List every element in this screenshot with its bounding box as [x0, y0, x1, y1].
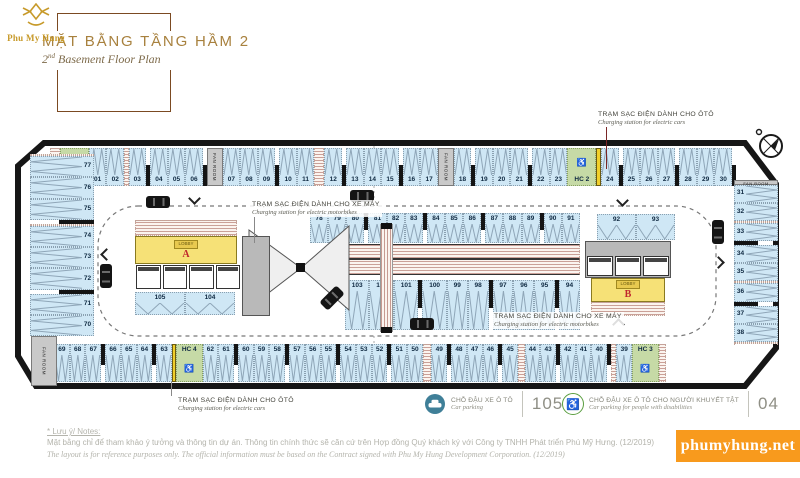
stall-number: 104	[186, 293, 234, 303]
elevator-icon	[136, 265, 161, 289]
stall-number: 57	[290, 345, 304, 355]
stall-number: 38	[735, 325, 746, 341]
stall-number: 41	[577, 345, 591, 355]
annotation-en: Charging station for electric motorbikes	[494, 321, 622, 328]
car-icon	[712, 220, 724, 244]
parking-stall: 05	[168, 148, 186, 186]
stall-number: 11	[298, 175, 313, 185]
stall-number: 31	[735, 186, 746, 202]
parking-stall: 105	[135, 292, 185, 315]
parking-stall: 41	[576, 344, 592, 382]
stall-number: 68	[71, 345, 85, 355]
parking-stall: 24	[601, 148, 619, 186]
wheelchair-icon: ♿	[177, 355, 202, 381]
core-b-stalls: 9293	[597, 214, 675, 240]
parking-stall: 93	[636, 214, 675, 240]
parking-stall: 98	[468, 280, 489, 330]
parking-stall: 62	[203, 344, 219, 382]
annotation-en: Charging station for electric cars	[178, 405, 294, 412]
parking-stall: 66	[105, 344, 121, 382]
stall-number: 75	[82, 200, 93, 219]
parking-stall: 92	[597, 214, 636, 240]
stall-number: 22	[533, 175, 549, 185]
parking-stall: 19	[475, 148, 493, 186]
parking-stall: 36	[734, 283, 778, 301]
wheelchair-icon: ♿	[633, 355, 658, 381]
parking-stall: 87	[485, 213, 503, 243]
elevator-icon	[615, 256, 641, 276]
parking-stall: 63	[156, 344, 172, 382]
stall-number: 05	[169, 175, 185, 185]
fan-room-label: FAN ROOM	[443, 153, 448, 181]
stall-number: 101	[395, 281, 417, 291]
parking-stall: 75	[30, 199, 94, 220]
car-parking-icon	[424, 393, 446, 415]
parking-stall: 88	[503, 213, 521, 243]
parking-stall: 21	[510, 148, 528, 186]
stall-number: 56	[306, 345, 320, 355]
stall-number: 84	[428, 214, 444, 224]
stall-number: 87	[486, 214, 502, 224]
parking-stall: 59	[254, 344, 270, 382]
stall-number: 18	[455, 175, 471, 185]
title-vietnamese: MẶT BẰNG TẦNG HẦM 2	[42, 33, 250, 50]
stall-number: 61	[219, 345, 233, 355]
parking-stall: 104	[185, 292, 235, 315]
core-b-lobby: LOBBY B	[591, 278, 665, 302]
stall-number: 58	[270, 345, 284, 355]
right-parking-column: FAN ROOM3132333435363738	[734, 180, 778, 344]
parking-stall: 16	[403, 148, 421, 186]
car-icon	[146, 196, 170, 208]
parking-stall: 65	[121, 344, 137, 382]
annotation-vi: TRẠM SẠC ĐIỆN DÀNH CHO ÔTÔ	[598, 111, 714, 119]
stall-number: 72	[82, 269, 93, 288]
parking-stall: 85	[445, 213, 463, 243]
floor-plan-page: Phu My Hung MẶT BẰNG TẦNG HẦM 2 2nd Base…	[0, 0, 800, 478]
stall-number: 09	[259, 175, 275, 185]
parking-stall: 83	[405, 213, 423, 243]
parking-stall: 89	[522, 213, 540, 243]
fan-room-label: FAN ROOM	[42, 347, 47, 375]
stall-number: 93	[637, 215, 674, 225]
top-parking-row: ♿HC 1010203040506FAN ROOM070809101112131…	[50, 148, 736, 186]
stall-number: 15	[382, 175, 398, 185]
stall-number: 66	[106, 345, 120, 355]
core-a-stalls: 105104	[135, 292, 235, 315]
notes-heading: * Lưu ý/ Notes:	[47, 427, 762, 436]
parking-stall: 48	[451, 344, 467, 382]
parking-stall: 30	[714, 148, 732, 186]
title-en-sup: nd	[48, 52, 55, 60]
legend-accessible-text: CHỖ ĐẬU XE Ô TÔ CHO NGƯỜI KHUYẾT TẬT Car…	[589, 397, 739, 411]
parking-stall: 28	[679, 148, 697, 186]
parking-stall: 45	[502, 344, 518, 382]
annotation-en: Charging station for electric motorbikes	[252, 209, 380, 216]
core-a-letter: A	[182, 249, 189, 260]
legend-accessible-en: Car parking for people with disabilities	[589, 404, 739, 411]
parking-stall: 64	[137, 344, 153, 382]
stall-number: 90	[545, 214, 561, 224]
parking-stall: 40	[591, 344, 607, 382]
notes: * Lưu ý/ Notes: Mặt bằng chỉ để tham khả…	[47, 427, 762, 459]
notes-english: The layout is for reference purposes onl…	[47, 450, 762, 459]
core-a-stair-block	[242, 236, 270, 316]
stall-number: 105	[136, 293, 184, 303]
parking-stall: 77	[30, 156, 94, 177]
stall-number: 47	[468, 345, 482, 355]
parking-stall: 42	[560, 344, 576, 382]
bottom-parking-row: 69686766656463♿HC 4626160595857565554535…	[54, 344, 666, 382]
stall-number: 99	[448, 281, 467, 291]
parking-stall: 60	[238, 344, 254, 382]
parking-stall: 09	[258, 148, 276, 186]
legend-divider	[748, 391, 749, 417]
stall-number: 76	[82, 178, 93, 197]
parking-stall: 74	[30, 226, 94, 247]
stall-number: 48	[452, 345, 466, 355]
stall-number: 08	[241, 175, 257, 185]
annotation-car-charging-top: TRẠM SẠC ĐIỆN DÀNH CHO ÔTÔ Charging stat…	[596, 110, 716, 127]
elevator-icon	[189, 265, 214, 289]
stall-number: 36	[735, 284, 746, 300]
parking-stall: 06	[185, 148, 203, 186]
notes-vietnamese: Mặt bằng chỉ để tham khảo ý tưởng và thô…	[47, 438, 762, 447]
parking-stall: 70	[30, 315, 94, 336]
accessible-stall: ♿HC 4	[176, 344, 203, 382]
parking-stall: 67	[85, 344, 101, 382]
stall-number: HC 3	[633, 345, 658, 355]
parking-stall: 91	[562, 213, 580, 243]
stall-number: 96	[514, 281, 533, 291]
fan-room: FAN ROOM	[207, 148, 223, 186]
stall-number: HC 2	[568, 175, 595, 185]
stall-number: 26	[641, 175, 657, 185]
stall-number: 91	[563, 214, 579, 224]
core-a-motorbike-area	[135, 220, 237, 236]
title-english: 2nd Basement Floor Plan	[42, 52, 250, 67]
stall-number: 94	[560, 281, 579, 291]
legend-car-en: Car parking	[451, 404, 513, 411]
parking-stall: 07	[223, 148, 241, 186]
stall-number: 04	[151, 175, 167, 185]
phu-my-hung-logo-icon	[14, 3, 58, 27]
stall-number: 40	[592, 345, 606, 355]
parking-stall: 61	[218, 344, 234, 382]
stall-number: HC 4	[177, 345, 202, 355]
phu-my-hung-logo: Phu My Hung	[2, 3, 70, 43]
motorbike-area	[659, 344, 666, 382]
parking-stall: 15	[381, 148, 399, 186]
parking-stall: 17	[420, 148, 438, 186]
parking-stall: 55	[321, 344, 337, 382]
legend-divider	[522, 391, 523, 417]
stall-number: 12	[325, 175, 341, 185]
parking-stall: 10	[279, 148, 297, 186]
stall-number: 14	[365, 175, 381, 185]
stall-number: 27	[659, 175, 675, 185]
stall-number: 49	[432, 345, 446, 355]
parking-stall: 86	[463, 213, 481, 243]
parking-stall: 72	[30, 268, 94, 289]
legend-accessible-vi: CHỖ ĐẬU XE Ô TÔ CHO NGƯỜI KHUYẾT TẬT	[589, 397, 739, 404]
parking-stall: 56	[305, 344, 321, 382]
stall-number: 77	[82, 157, 93, 176]
parking-stall: 47	[467, 344, 483, 382]
fan-room: FAN ROOM	[438, 148, 454, 186]
stall-number: 98	[469, 281, 488, 291]
leader-line	[606, 127, 607, 169]
stall-number: 54	[341, 345, 355, 355]
stall-number: 86	[464, 214, 480, 224]
accessible-stall: ♿HC 3	[632, 344, 659, 382]
parking-stall: 54	[340, 344, 356, 382]
stall-number: 95	[535, 281, 554, 291]
stall-number: 88	[504, 214, 520, 224]
basement-plan: ♿HC 1010203040506FAN ROOM070809101112131…	[14, 128, 784, 394]
stall-number: 52	[373, 345, 387, 355]
legend-accessible-count: 04	[758, 394, 779, 414]
stall-number: 85	[446, 214, 462, 224]
parking-stall: 43	[540, 344, 556, 382]
page-title: MẶT BẰNG TẦNG HẦM 2 2nd Basement Floor P…	[38, 31, 258, 70]
stall-number: 34	[735, 246, 746, 262]
parking-stall: 46	[483, 344, 499, 382]
stall-number: 43	[541, 345, 555, 355]
parking-stall: 08	[240, 148, 258, 186]
stall-number: 33	[735, 224, 746, 240]
stall-number: 30	[715, 175, 731, 185]
annotation-en: Charging station for electric cars	[598, 119, 714, 126]
stall-number: 60	[239, 345, 253, 355]
parking-stall: 35	[734, 263, 778, 281]
brand-text: Phu My Hung	[2, 33, 70, 43]
stall-number: 44	[526, 345, 540, 355]
stall-number: 35	[735, 264, 746, 280]
stall-number: 71	[82, 295, 93, 314]
legend-car-count: 105	[532, 394, 563, 414]
motorbike-area	[423, 344, 431, 382]
lobby-label: LOBBY	[616, 280, 639, 288]
annotation-vi: TRẠM SẠC ĐIỆN DÀNH CHO XE MÁY	[252, 201, 380, 209]
stall-number: 13	[347, 175, 363, 185]
parking-stall: 49	[431, 344, 447, 382]
stall-number: 67	[86, 345, 100, 355]
parking-stall: 22	[532, 148, 550, 186]
parking-stall: 51	[391, 344, 407, 382]
parking-stall: 37	[734, 306, 778, 324]
parking-stall: 84	[427, 213, 445, 243]
leader-line	[254, 217, 255, 243]
annotation-motorbike-charging-center: TRẠM SẠC ĐIỆN DÀNH CHO XE MÁY Charging s…	[492, 312, 624, 329]
accessible-stall: ♿HC 2	[567, 148, 596, 186]
accessible-parking-icon: ♿	[562, 393, 584, 415]
parking-stall: 39	[616, 344, 632, 382]
parking-stall: 23	[550, 148, 568, 186]
elevator-icon	[216, 265, 241, 289]
stall-number: 59	[255, 345, 269, 355]
stall-number: 17	[421, 175, 437, 185]
stall-number: 50	[408, 345, 422, 355]
stall-number: 45	[503, 345, 517, 355]
parking-stall: 38	[734, 324, 778, 342]
parking-stall: 34	[734, 245, 778, 263]
stall-number: 07	[224, 175, 240, 185]
stall-number: 73	[82, 248, 93, 267]
car-icon	[410, 318, 434, 330]
stall-number: 25	[624, 175, 640, 185]
parking-stall: 13	[346, 148, 364, 186]
motorbike-area	[314, 148, 324, 186]
annotation-motorbike-charging-top: TRẠM SẠC ĐIỆN DÀNH CHO XE MÁY Charging s…	[250, 200, 382, 217]
stall-number: 83	[406, 214, 422, 224]
stall-number: 74	[82, 227, 93, 246]
stall-number: 42	[561, 345, 575, 355]
annotation-vi: TRẠM SẠC ĐIỆN DÀNH CHO ÔTÔ	[178, 397, 294, 405]
stall-number: 32	[735, 204, 746, 220]
stall-number: 29	[698, 175, 714, 185]
parking-stall: 52	[372, 344, 388, 382]
legend-car-vi: CHỖ ĐẬU XE Ô TÔ	[451, 397, 513, 404]
parking-stall: 32	[734, 203, 778, 221]
wheelchair-icon: ♿	[568, 149, 595, 175]
stall-number: 28	[680, 175, 696, 185]
leader-line	[171, 382, 172, 396]
annotation-vi: TRẠM SẠC ĐIỆN DÀNH CHO XE MÁY	[494, 313, 622, 321]
stall-number: 70	[82, 316, 93, 335]
core-b-elevators	[586, 255, 670, 277]
stall-number: 89	[523, 214, 539, 224]
stall-number: 100	[423, 281, 445, 291]
fan-room-label: FAN ROOM	[212, 153, 217, 181]
parking-stall: 11	[297, 148, 314, 186]
core-b-letter: B	[625, 289, 632, 300]
core-a-elevators	[135, 264, 241, 290]
lobby-label: LOBBY	[174, 240, 197, 248]
stall-number: 24	[602, 175, 618, 185]
parking-stall: 44	[525, 344, 541, 382]
stall-number: 02	[107, 175, 123, 185]
stall-number: 19	[476, 175, 492, 185]
car-icon	[100, 264, 112, 288]
stall-number: 16	[404, 175, 420, 185]
stall-number: 39	[617, 345, 631, 355]
stall-number: 53	[357, 345, 371, 355]
parking-stall: 04	[150, 148, 168, 186]
stall-number: 03	[130, 175, 146, 185]
stall-number: 37	[735, 307, 746, 323]
parking-stall: 90	[544, 213, 562, 243]
left-parking-column: 7776757473727170	[30, 154, 94, 336]
parking-stall: 03	[129, 148, 147, 186]
parking-stall: 50	[407, 344, 423, 382]
parking-stall: 20	[493, 148, 511, 186]
parking-stall: 25	[623, 148, 641, 186]
motorbike-area	[734, 342, 778, 344]
parking-stall: 68	[70, 344, 86, 382]
stall-number: 92	[598, 215, 635, 225]
stall-number: 23	[551, 175, 567, 185]
stall-number: 20	[494, 175, 510, 185]
parking-stall: 27	[658, 148, 676, 186]
stall-number: 55	[322, 345, 336, 355]
stall-number: 97	[494, 281, 513, 291]
stall-number: 63	[157, 345, 171, 355]
core-a-lobby: LOBBY A	[135, 236, 237, 264]
parking-stall: 14	[364, 148, 382, 186]
stall-number: 21	[511, 175, 527, 185]
stall-number: 51	[392, 345, 406, 355]
watermark-badge: phumyhung.net	[676, 430, 800, 462]
core-b-block	[585, 241, 671, 278]
elevator-icon	[163, 265, 188, 289]
legend-car-parking: CHỖ ĐẬU XE Ô TÔ Car parking 105	[424, 391, 563, 417]
parking-stall: 02	[106, 148, 124, 186]
parking-stall: 57	[289, 344, 305, 382]
elevator-icon	[587, 256, 613, 276]
parking-stall: 99	[447, 280, 468, 330]
parking-stall: 76	[30, 177, 94, 198]
elevator-icon	[643, 256, 669, 276]
parking-stall: 31	[734, 185, 778, 203]
stall-number: 10	[280, 175, 296, 185]
annotation-car-charging-bottom: TRẠM SẠC ĐIỆN DÀNH CHO ÔTÔ Charging stat…	[176, 396, 296, 413]
parking-stall: 53	[356, 344, 372, 382]
stall-number: 69	[55, 345, 69, 355]
stall-number: 46	[484, 345, 498, 355]
stall-number: 65	[122, 345, 136, 355]
parking-stall: 29	[697, 148, 715, 186]
parking-stall: 33	[734, 223, 778, 241]
parking-stall: 12	[324, 148, 342, 186]
parking-stall: 71	[30, 294, 94, 315]
island-spine	[380, 224, 393, 332]
parking-stall: 18	[454, 148, 472, 186]
parking-stall: 58	[269, 344, 285, 382]
stall-number: 06	[186, 175, 202, 185]
parking-stall: 73	[30, 247, 94, 268]
fan-room: FAN ROOM	[31, 336, 57, 386]
title-en-rest: Basement Floor Plan	[55, 52, 161, 66]
legend-car-text: CHỖ ĐẬU XE Ô TÔ Car parking	[451, 397, 513, 411]
stall-number: 64	[138, 345, 152, 355]
stall-number: 62	[204, 345, 218, 355]
parking-stall: 26	[640, 148, 658, 186]
legend-accessible-parking: ♿ CHỖ ĐẬU XE Ô TÔ CHO NGƯỜI KHUYẾT TẬT C…	[562, 391, 779, 417]
